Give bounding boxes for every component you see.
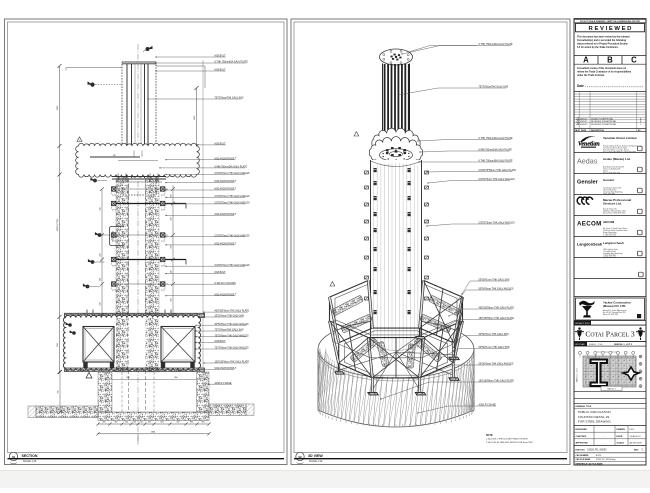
svg-text:F +852 2317 7609: F +852 2317 7609	[603, 236, 616, 238]
svg-text:Consultants(s) and is accorded: Consultants(s) and is accorded the follo…	[577, 39, 627, 42]
svg-text:FOUNTAIN DETAIL 29: FOUNTAIN DETAIL 29	[578, 415, 610, 419]
svg-text:DRAWING TITLE: DRAWING TITLE	[576, 405, 592, 408]
svg-text:500: 500	[171, 298, 173, 301]
svg-text:F (852) 2576 0416: F (852) 2576 0416	[603, 257, 616, 259]
svg-text:T (852) 2830 3500: T (852) 2830 3500	[603, 255, 616, 257]
svg-text:50*50*6mm THK GALV SHS: 50*50*6mm THK GALV SHS	[479, 333, 510, 336]
svg-text:LWO: LWO	[630, 429, 635, 431]
svg-text:AS SHOWN: AS SHOWN	[630, 441, 642, 444]
svg-text:M10 ANCHOR BOLT: M10 ANCHOR BOLT	[215, 157, 237, 160]
svg-text:864: 864	[115, 422, 118, 424]
svg-text:300: 300	[177, 422, 180, 424]
svg-text:(TYP): (TYP)	[161, 195, 166, 197]
svg-text:500: 500	[171, 194, 173, 197]
svg-text:Macau Phone: (853) 2871 562: Macau Phone: (853) 2871 5622	[603, 213, 626, 215]
svg-text:1125: 1125	[57, 105, 59, 110]
svg-text:A-524: A-524	[596, 454, 601, 457]
svg-text:M10 ANCHOR BOLT: M10 ANCHOR BOLT	[215, 293, 237, 296]
svg-text:50*50*6mm THK GALV ANGLES: 50*50*6mm THK GALV ANGLES	[479, 363, 514, 366]
svg-text:(TYP): (TYP)	[112, 266, 117, 268]
svg-text:PROJECT TITLE: PROJECT TITLE	[575, 323, 590, 325]
svg-text:300: 300	[148, 422, 151, 424]
svg-text:50*50*6mm THK GALV ANGLES: 50*50*6mm THK GALV ANGLES	[215, 323, 250, 326]
svg-text:SCALE 1:10: SCALE 1:10	[23, 460, 37, 463]
svg-text:6 MM 750mmDIA GALV PLATE: 6 MM 750mmDIA GALV PLATE	[215, 166, 248, 169]
svg-text:LangdonSeah: LangdonSeah	[577, 243, 603, 247]
svg-text:China Law Building 21/F: China Law Building 21/F	[603, 169, 620, 171]
svg-text:M10 ANCHOR BOLT: M10 ANCHOR BOLT	[215, 367, 237, 370]
svg-text:500: 500	[171, 217, 173, 220]
svg-text:Gensler: Gensler	[603, 178, 615, 182]
svg-text:75*75*6mmTHK GALV SHS: 75*75*6mmTHK GALV SHS	[479, 86, 509, 89]
svg-text:A: A	[583, 56, 589, 65]
svg-text:5.4 for action by the Trade Co: 5.4 for action by the Trade Contractor.	[577, 46, 619, 49]
svg-text:APPROVED: APPROVED	[576, 441, 589, 444]
svg-text:Two Harbour Square 22/F: Two Harbour Square 22/F	[603, 188, 621, 190]
svg-text:M10 ANCHOR BOLT: M10 ANCHOR BOLT	[215, 180, 237, 183]
svg-text:500: 500	[171, 245, 173, 248]
svg-text:25*25*6mm THK GALV SHS: 25*25*6mm THK GALV SHS	[215, 315, 245, 318]
svg-text:C: C	[631, 56, 637, 65]
svg-text:COTDT6mm THK GALV ANGLES: COTDT6mm THK GALV ANGLES	[215, 195, 251, 198]
svg-text:460*350*8mm THK GALV PLATE: 460*350*8mm THK GALV PLATE	[215, 310, 250, 313]
svg-text:05/06/15: 05/06/15	[580, 124, 587, 126]
svg-text:(TYP): (TYP)	[161, 210, 166, 212]
svg-text:SECTION: SECTION	[22, 454, 38, 458]
svg-text:(TYP): (TYP)	[112, 210, 117, 212]
svg-text:FOR STEEL DRAWING: FOR STEEL DRAWING	[578, 419, 611, 423]
svg-text:6 MM 750mmDIA GALV PLATE: 6 MM 750mmDIA GALV PLATE	[479, 149, 513, 152]
svg-text:500: 500	[100, 302, 102, 305]
svg-text:(TYP): (TYP)	[112, 290, 117, 292]
svg-text:M10 ANCHOR BOLT: M10 ANCHOR BOLT	[215, 243, 237, 246]
svg-text:under the Trade Contract.: under the Trade Contract.	[577, 74, 605, 77]
svg-text:M10 BOLT: M10 BOLT	[215, 341, 227, 343]
svg-text:150*150*8mm THK GALV PLATE: 150*150*8mm THK GALV PLATE	[479, 380, 515, 383]
svg-text:31928_FD_S9290.dwg: 31928_FD_S9290.dwg	[596, 459, 615, 461]
svg-text:Venetian Orient Limited: Venetian Orient Limited	[603, 136, 637, 140]
svg-text:1125: 1125	[194, 115, 196, 120]
svg-text:M10 ANCHOR BOLT: M10 ANCHOR BOLT	[215, 188, 237, 191]
svg-text:M10 ANCHOR BOLT: M10 ANCHOR BOLT	[215, 213, 237, 216]
svg-text:relieve the Trade Contractor o: relieve the Trade Contractor of its resp…	[577, 71, 632, 74]
svg-text:PARCEL 1, LOT 2: PARCEL 1, LOT 2	[614, 343, 633, 346]
svg-text:AECOM: AECOM	[577, 221, 602, 228]
svg-text:REFERENCE CAD FILE NAME: REFERENCE CAD FILE NAME	[576, 462, 604, 465]
svg-text:COTDT5mm THK GALV ANGLES: COTDT5mm THK GALV ANGLES	[215, 202, 251, 205]
svg-text:Date :: Date :	[577, 84, 586, 88]
svg-text:CAD NUMBER: CAD NUMBER	[576, 454, 590, 457]
svg-text:50*50*6mm THK GALV ANGLES: 50*50*6mm THK GALV ANGLES	[479, 288, 514, 291]
svg-text:500: 500	[100, 253, 102, 256]
svg-text:50*50*6 mm THK GALV SHS: 50*50*6 mm THK GALV SHS	[479, 279, 510, 282]
svg-text:RE-ISSUED FOR APPROVAL: RE-ISSUED FOR APPROVAL	[591, 123, 616, 126]
svg-text:150: 150	[140, 422, 143, 424]
svg-text:COTDT5mm THK GALV ANGLES: COTDT5mm THK GALV ANGLES	[215, 264, 251, 267]
svg-text:REV: REV	[634, 450, 639, 452]
svg-text:75*75*6mm THK GALV ANGLES: 75*75*6mm THK GALV ANGLES	[215, 347, 250, 350]
svg-text:(TYP): (TYP)	[112, 195, 117, 197]
svg-text:A250 R.C BASE: A250 R.C BASE	[215, 382, 232, 385]
svg-text:ISSUED FOR APPROVAL: ISSUED FOR APPROVAL	[591, 118, 613, 121]
svg-text:PARCEL 3: PARCEL 3	[607, 387, 616, 390]
svg-text:75*75*6mmTHK GALV SHS: 75*75*6mmTHK GALV SHS	[215, 97, 244, 100]
svg-text:(TYP): (TYP)	[161, 290, 166, 292]
svg-text:Rua de Xangai 175: Rua de Xangai 175	[603, 209, 617, 211]
svg-text:Macau Tel: 2870 3113: Macau Tel: 2870 3113	[603, 314, 618, 316]
svg-text:(TYP): (TYP)	[112, 241, 117, 243]
svg-text:Causeway Bay, Hong Kong: Causeway Bay, Hong Kong	[603, 253, 622, 255]
svg-text:M8: M8	[113, 155, 116, 157]
svg-text:22/05/15: 22/05/15	[580, 121, 587, 123]
svg-text:Aedas (Macau) Ltd.: Aedas (Macau) Ltd.	[603, 157, 631, 161]
svg-text:Langdon Seah: Langdon Seah	[603, 241, 624, 245]
svg-text:(Macau) CO. LTD.: (Macau) CO. LTD.	[603, 304, 626, 308]
svg-text:DESCRIPTION: DESCRIPTION	[591, 130, 605, 132]
svg-text:Gensler: Gensler	[577, 180, 599, 186]
svg-text:75*75*6mmTHK GALV SHS: 75*75*6mmTHK GALV SHS	[215, 329, 244, 332]
svg-text:2. ALL FILLET WELDED SHOULD BE: 2. ALL FILLET WELDED SHOULD BE 6mm THK.	[486, 441, 533, 444]
svg-text:M10 BOLT: M10 BOLT	[215, 144, 227, 146]
svg-text:AECOM: AECOM	[603, 220, 615, 224]
svg-text:M10 BOLT: M10 BOLT	[215, 272, 227, 274]
svg-text:DO NOT SCALE DRAWING, VERIFY A: DO NOT SCALE DRAWING, VERIFY ALL DIMENSI…	[580, 20, 640, 23]
svg-text:CAD FILE NAME: CAD FILE NAME	[576, 458, 592, 461]
svg-text:6 THK 750mmDIA GALV PLATE: 6 THK 750mmDIA GALV PLATE	[479, 137, 514, 140]
svg-text:150*150*8mm THK GALV PLATE: 150*150*8mm THK GALV PLATE	[215, 361, 250, 364]
svg-text:150: 150	[133, 422, 136, 424]
svg-text:500: 500	[100, 207, 102, 210]
svg-text:1. ALL BOLT SHOULD BE FIXING O: 1. ALL BOLT SHOULD BE FIXING ON SITE.	[486, 438, 529, 441]
svg-text:08/05/15: 08/05/15	[580, 119, 587, 121]
svg-text:300: 300	[202, 422, 205, 424]
svg-text:460*200*8mm THK GALV PLATE: 460*200*8mm THK GALV PLATE	[479, 307, 515, 310]
svg-text:SCALE 1 : 7 500: SCALE 1 : 7 500	[589, 343, 602, 346]
svg-text:864: 864	[161, 422, 164, 424]
svg-text:# 300 R.C COLUMN: # 300 R.C COLUMN	[215, 283, 237, 285]
svg-text:T +852 2317 7623: T +852 2317 7623	[603, 234, 616, 236]
svg-text:6 THK 750mmDIA GALV PLATE: 6 THK 750mmDIA GALV PLATE	[479, 43, 514, 46]
svg-text:DRAWN: DRAWN	[617, 428, 626, 431]
svg-text:Consultant review of this docu: Consultant review of this document does …	[577, 67, 626, 70]
svg-text:B: B	[607, 56, 613, 65]
svg-text:864: 864	[190, 422, 193, 424]
svg-text:3D VIEW: 3D VIEW	[308, 454, 323, 458]
svg-text:C: C	[642, 449, 644, 452]
svg-text:RE-ISSUED FOR APPROVAL: RE-ISSUED FOR APPROVAL	[591, 120, 616, 123]
svg-text:Aedas: Aedas	[577, 157, 598, 166]
svg-text:14-AUG-15: 14-AUG-15	[630, 435, 642, 438]
svg-text:CHECKED: CHECKED	[576, 436, 587, 438]
svg-text:R E V I E W E D: R E V I E W E D	[589, 26, 632, 32]
svg-text:COTDT5mm THK GALV ANGLES: COTDT5mm THK GALV ANGLES	[479, 178, 515, 181]
svg-text:75*75*6mm THK GALV ANGLES: 75*75*6mm THK GALV ANGLES	[215, 334, 250, 337]
svg-text:50*50*6 mm THK GALV SHS: 50*50*6 mm THK GALV SHS	[479, 346, 510, 349]
svg-text:COTDT5*50mm THK GALV PLATE: COTDT5*50mm THK GALV PLATE	[479, 169, 517, 172]
svg-text:150*150*8mm THK GALV PLATE: 150*150*8mm THK GALV PLATE	[479, 317, 515, 320]
svg-text:DWG NO: DWG NO	[576, 450, 586, 452]
svg-text:M10 BOLT: M10 BOLT	[215, 70, 227, 72]
svg-text:31928_FD_S9290: 31928_FD_S9290	[587, 449, 607, 452]
svg-text:COTDT5mm THK GALV ANGLES: COTDT5mm THK GALV ANGLES	[215, 172, 251, 175]
svg-text:300: 300	[125, 422, 128, 424]
svg-text:KEY PLAN: KEY PLAN	[575, 343, 585, 346]
svg-text:DATE: DATE	[581, 129, 587, 132]
svg-text:6 THK 750mmDIA GALV PLATE: 6 THK 750mmDIA GALV PLATE	[215, 61, 249, 64]
svg-text:COTDT5mm THK GALV ANGLES: COTDT5mm THK GALV ANGLES	[479, 222, 515, 225]
svg-text:DATE: DATE	[617, 435, 623, 438]
svg-text:This document has been revised: This document has been revised by the re…	[577, 36, 630, 39]
svg-text:PUBLIC CIRCULATION: PUBLIC CIRCULATION	[578, 410, 611, 414]
svg-text:SCALE 1:10: SCALE 1:10	[309, 460, 323, 463]
svg-text:300: 300	[103, 422, 106, 424]
svg-text:status referred to in Project: status referred to in Project Procedure …	[577, 43, 629, 46]
svg-text:T 852.2810.8399: T 852.2810.8399	[603, 194, 615, 196]
svg-text:500: 500	[100, 278, 102, 281]
svg-text:DESIGNED: DESIGNED	[576, 429, 588, 431]
svg-text:SCALE: SCALE	[617, 441, 625, 444]
svg-text:Phone: (853) 2833 1022: Phone: (853) 2833 1022	[603, 173, 620, 175]
svg-text:Phone: (853) 2882 8888 Fax: (: Phone: (853) 2882 8888 Fax: (853) 2882 8…	[603, 152, 636, 154]
svg-text:Macau: Macau	[603, 171, 608, 173]
svg-text:(TYP): (TYP)	[161, 241, 166, 243]
svg-text:6 THK 750mmDIA GALV PLATE: 6 THK 750mmDIA GALV PLATE	[479, 160, 514, 163]
svg-text:A250 R.C BASE: A250 R.C BASE	[479, 404, 497, 407]
svg-text:Causeway Bay, Hong Kong: Causeway Bay, Hong Kong	[603, 192, 622, 194]
svg-text:(TYP): (TYP)	[161, 266, 166, 268]
svg-text:500: 500	[171, 270, 173, 273]
svg-text:M10 BOLT: M10 BOLT	[215, 56, 227, 58]
svg-text:4: 4	[138, 443, 139, 445]
svg-text:Services Ltd.: Services Ltd.	[603, 202, 622, 206]
svg-text:PARCEL 1, LOT 1: PARCEL 1, LOT 1	[576, 368, 579, 382]
svg-text:COTDT5mm THK GALV ANGLES: COTDT5mm THK GALV ANGLES	[215, 234, 251, 237]
svg-text:11250 (TYP.): 11250 (TYP.)	[57, 218, 59, 231]
svg-text:NOTE:: NOTE:	[486, 435, 493, 437]
